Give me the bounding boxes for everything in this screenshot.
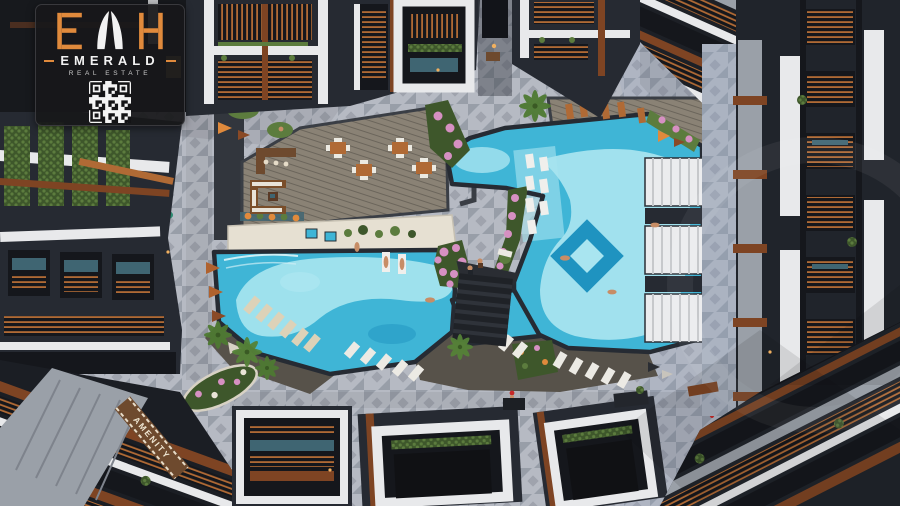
letter-h	[139, 13, 163, 49]
logo-dash	[44, 60, 54, 62]
person-figure	[279, 127, 284, 132]
aerial-render-viewport: AMENITY EMERALD REAL ESTATE	[0, 0, 900, 506]
qr-code	[89, 81, 131, 123]
person-figure	[354, 242, 359, 252]
brand-name-row: EMERALD	[44, 53, 175, 68]
person-figure	[477, 258, 483, 268]
entry-gap-kiosk	[478, 0, 512, 96]
person-figure	[607, 290, 616, 295]
building-top-center-cluster	[350, 0, 480, 106]
person-figure	[425, 297, 435, 302]
emh-logo-icon	[54, 11, 166, 51]
brand-name: EMERALD	[60, 53, 159, 68]
building-left-wing	[0, 104, 182, 374]
letter-m-wings	[97, 11, 122, 49]
person-figure	[467, 265, 473, 275]
person-figure	[560, 255, 570, 260]
letter-e	[57, 13, 82, 49]
brand-tagline: REAL ESTATE	[69, 70, 151, 77]
logo-dash	[166, 60, 176, 62]
building-top-left-cluster	[186, 0, 350, 116]
person-figure	[650, 223, 659, 228]
brand-logo-card: EMERALD REAL ESTATE	[35, 4, 185, 126]
